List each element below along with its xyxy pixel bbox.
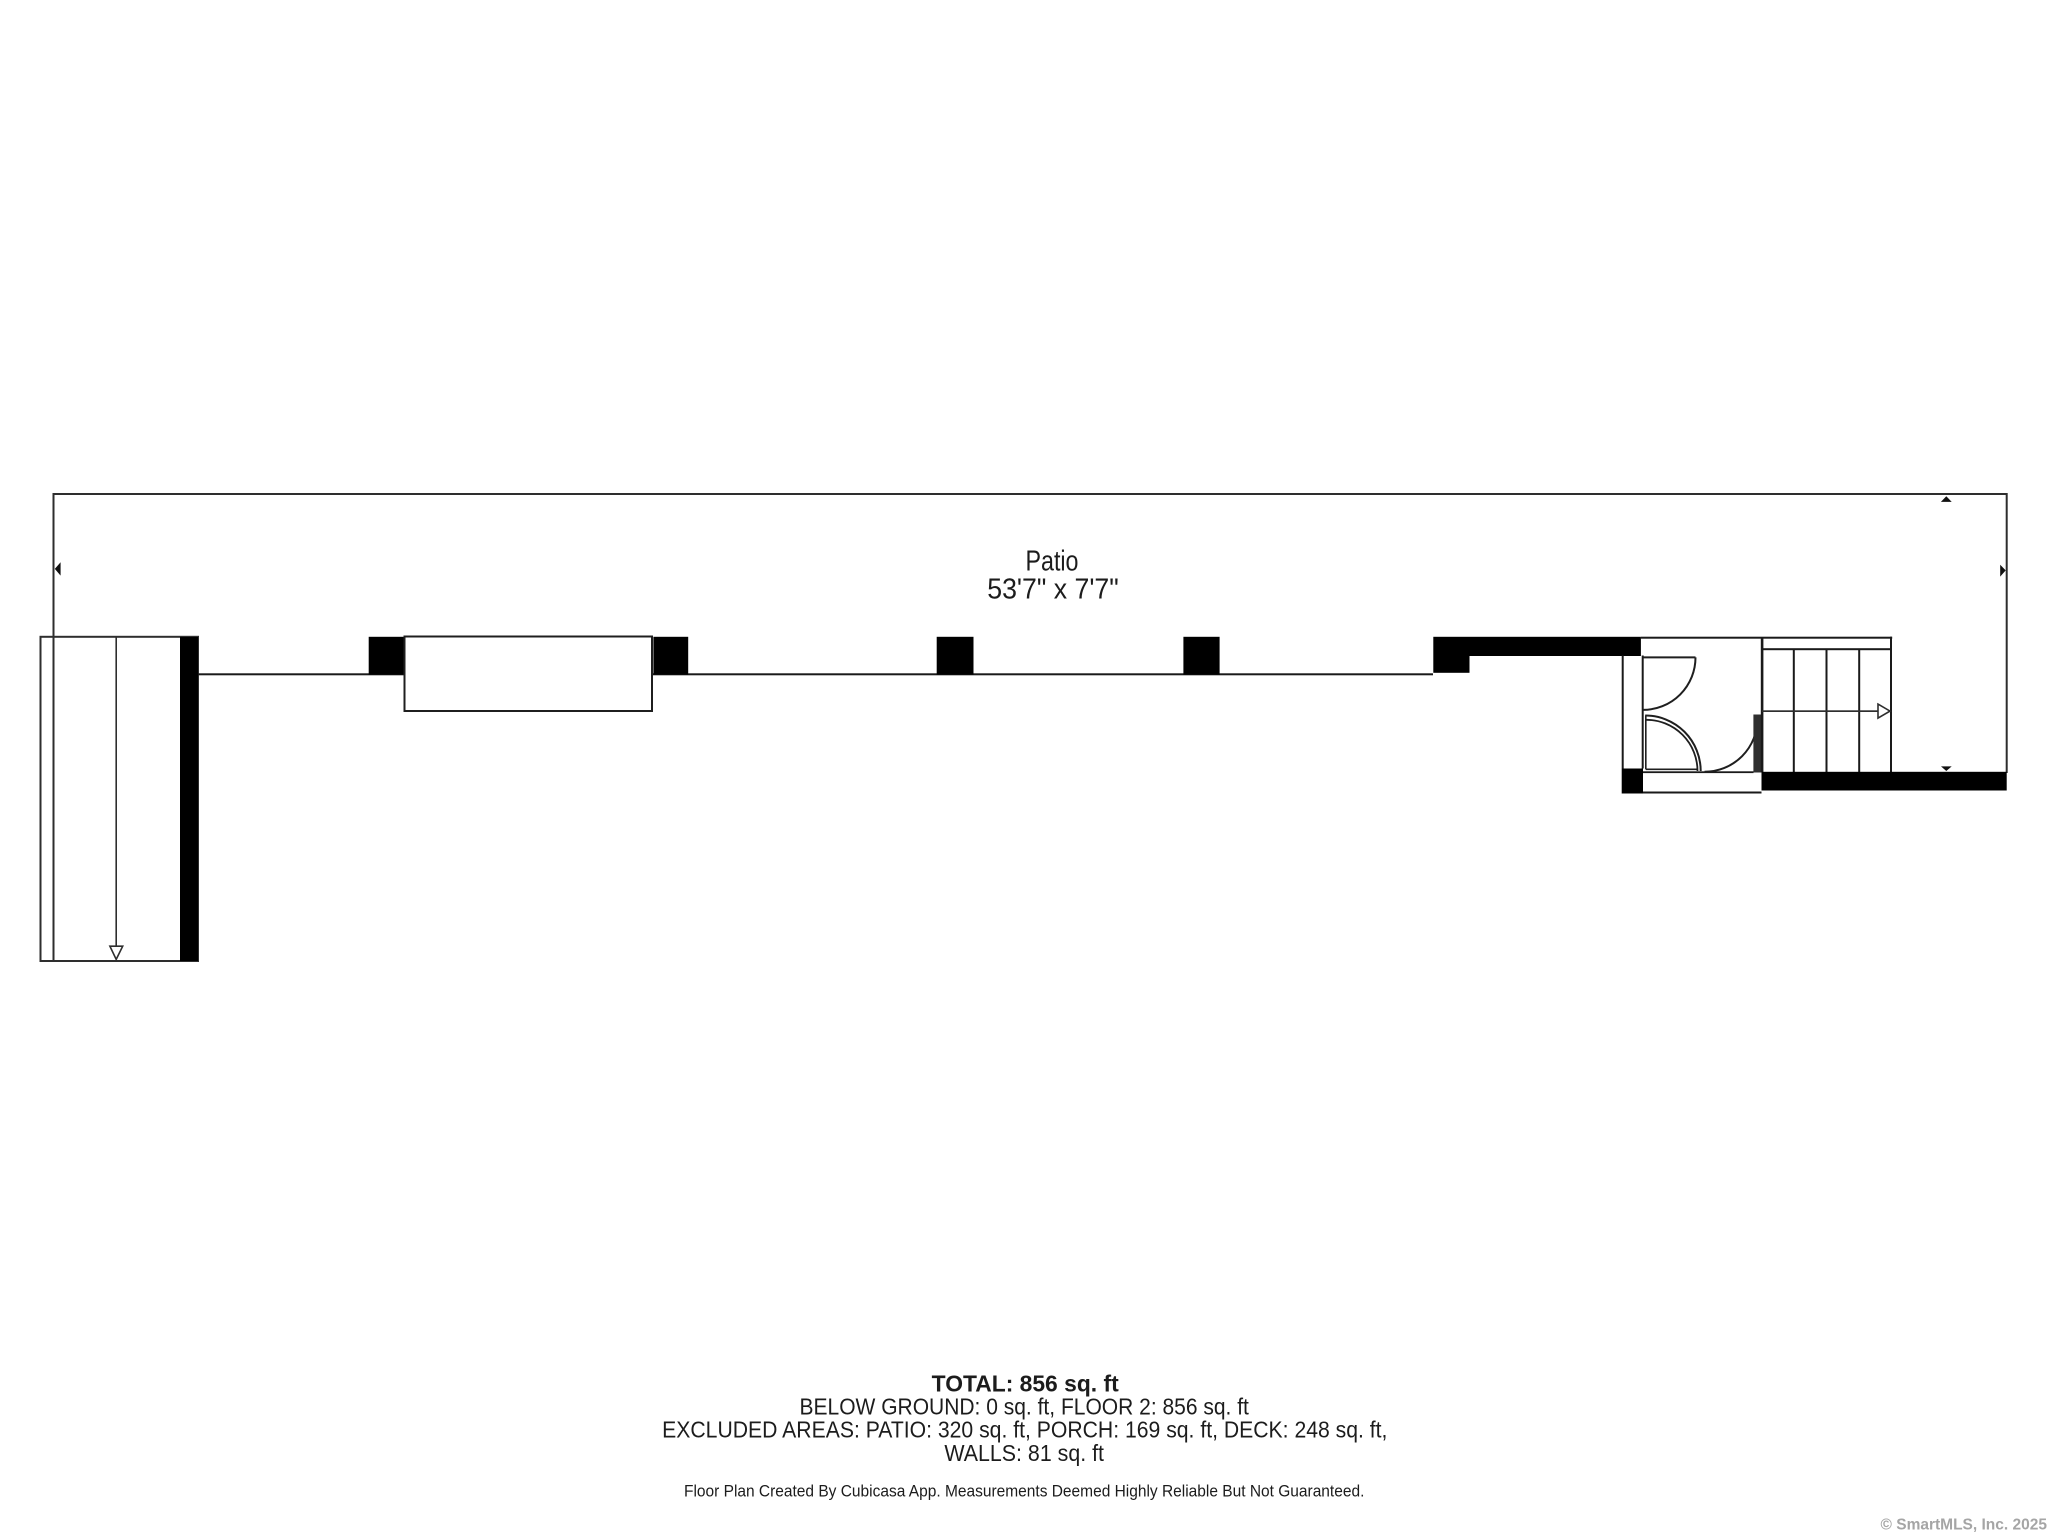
svg-text:Floor Plan Created By Cubicasa: Floor Plan Created By Cubicasa App. Meas… (684, 1483, 1364, 1501)
svg-text:53'7" x 7'7": 53'7" x 7'7" (987, 574, 1119, 606)
svg-text:WALLS: 81 sq. ft: WALLS: 81 sq. ft (944, 1440, 1104, 1466)
svg-text:© SmartMLS, Inc. 2025: © SmartMLS, Inc. 2025 (1881, 1517, 2048, 1534)
svg-text:BELOW GROUND: 0 sq. ft, FLOOR: BELOW GROUND: 0 sq. ft, FLOOR 2: 856 sq.… (800, 1394, 1250, 1420)
svg-text:TOTAL: 856 sq. ft: TOTAL: 856 sq. ft (932, 1371, 1119, 1397)
svg-text:EXCLUDED AREAS: PATIO: 320 sq.: EXCLUDED AREAS: PATIO: 320 sq. ft, PORCH… (662, 1417, 1387, 1443)
